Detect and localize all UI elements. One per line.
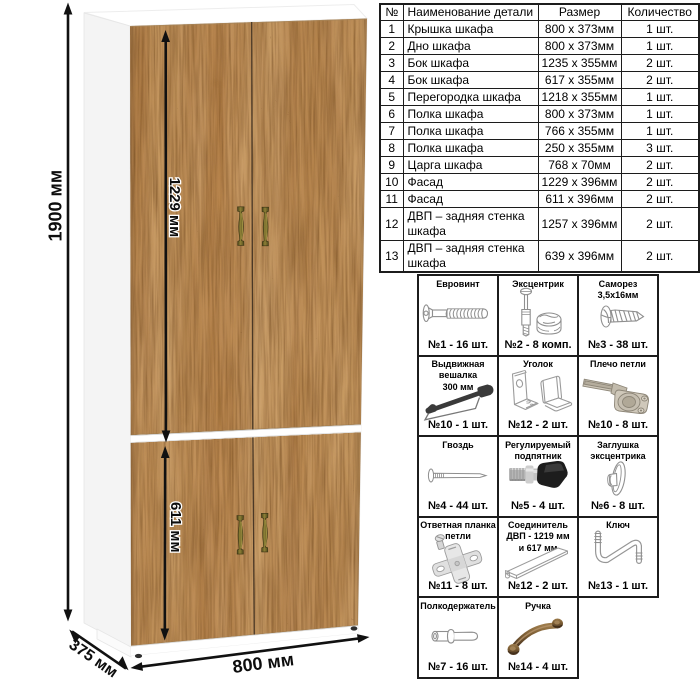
- svg-text:611 мм: 611 мм: [167, 502, 184, 553]
- svg-text:1900 мм: 1900 мм: [46, 170, 66, 242]
- svg-text:1229 мм: 1229 мм: [166, 178, 183, 238]
